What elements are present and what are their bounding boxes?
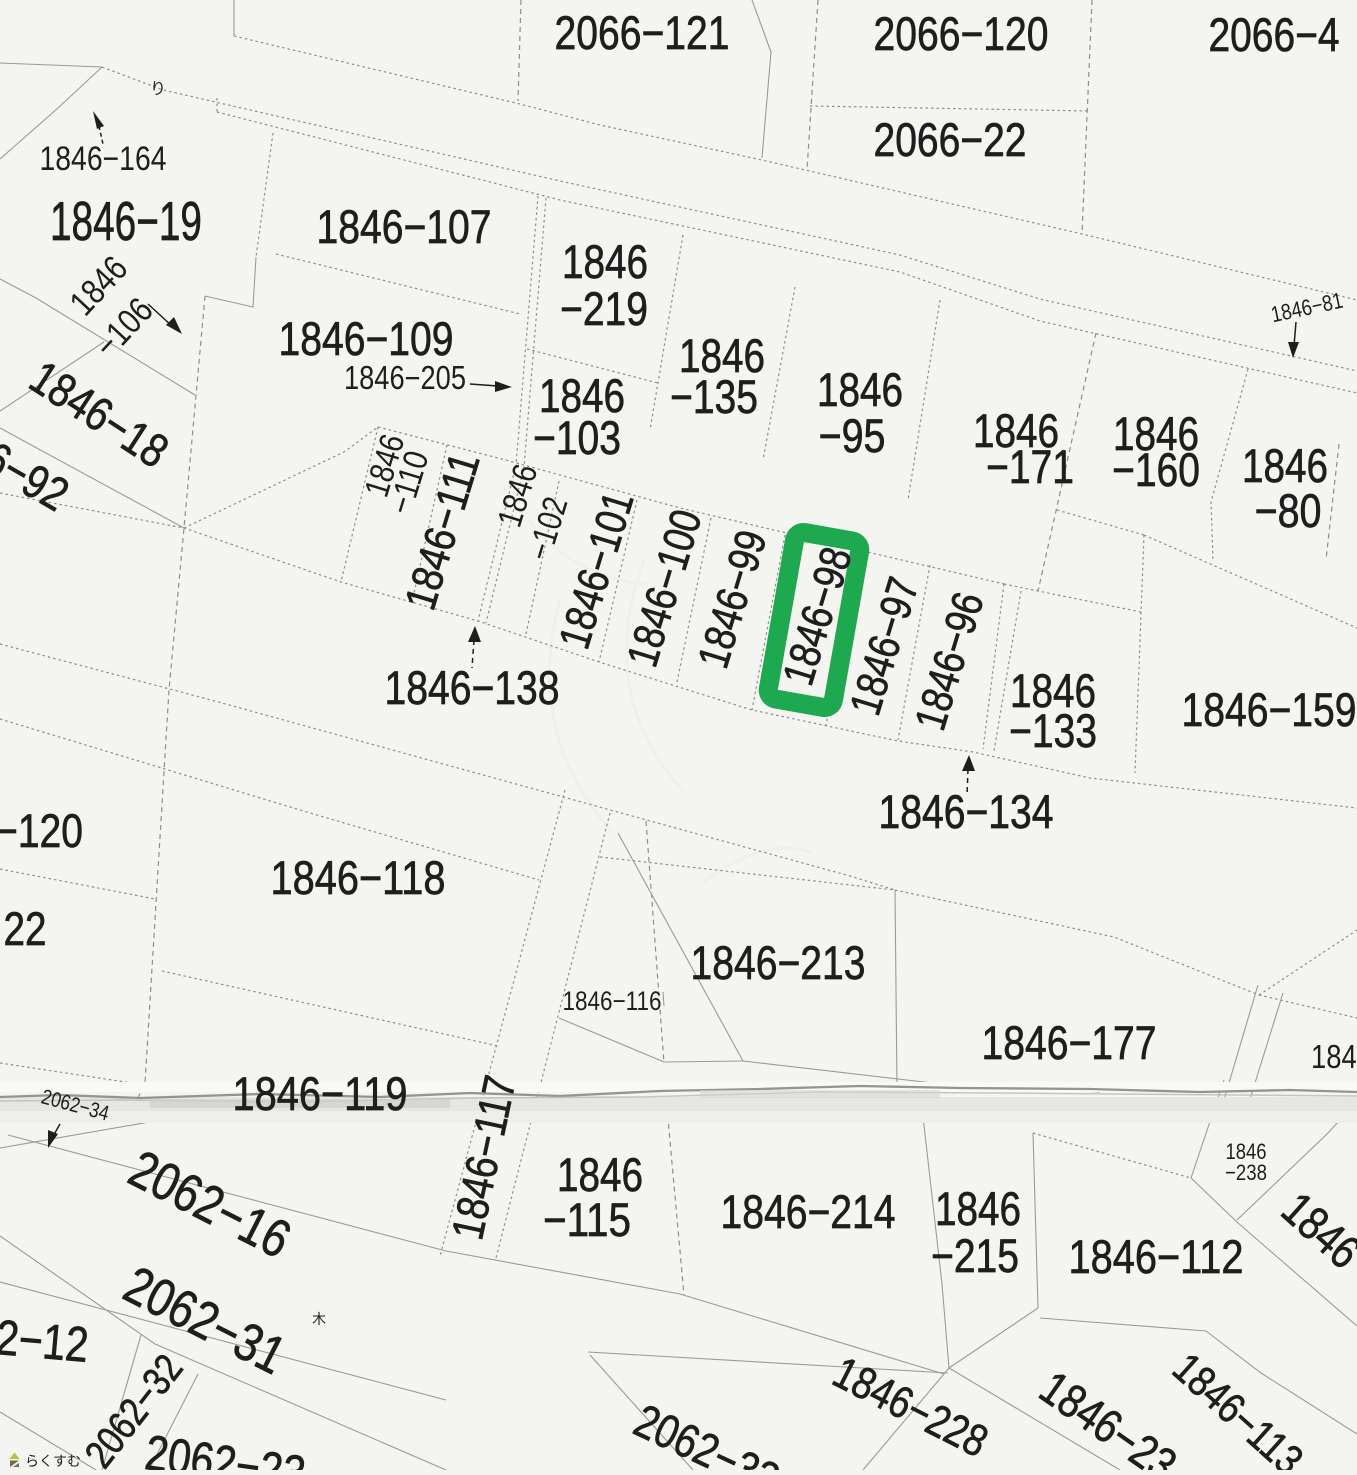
svg-text:−103: −103 xyxy=(533,412,621,465)
svg-text:1846−116: 1846−116 xyxy=(563,986,662,1016)
svg-text:1846: 1846 xyxy=(562,236,648,289)
svg-text:1846−118: 1846−118 xyxy=(271,852,446,905)
svg-text:22: 22 xyxy=(4,903,47,956)
svg-text:らくすむ: らくすむ xyxy=(25,1453,81,1469)
svg-text:1846−164: 1846−164 xyxy=(40,140,167,178)
svg-text:−238: −238 xyxy=(1225,1160,1267,1185)
svg-text:1846−213: 1846−213 xyxy=(691,937,866,990)
svg-text:−115: −115 xyxy=(543,1194,631,1247)
svg-text:2066−121: 2066−121 xyxy=(555,7,730,60)
svg-text:1846−119: 1846−119 xyxy=(233,1068,408,1121)
svg-text:−133: −133 xyxy=(1009,705,1097,758)
svg-text:−120: −120 xyxy=(0,805,83,858)
svg-text:2066−22: 2066−22 xyxy=(874,114,1027,167)
svg-text:2066−4: 2066−4 xyxy=(1209,9,1340,62)
svg-text:1846−205: 1846−205 xyxy=(344,359,466,396)
svg-text:1846−214: 1846−214 xyxy=(721,1186,896,1239)
svg-text:−171: −171 xyxy=(986,441,1074,494)
svg-text:−95: −95 xyxy=(819,410,886,463)
svg-text:り: り xyxy=(150,81,166,98)
svg-text:−219: −219 xyxy=(560,283,648,336)
svg-text:−160: −160 xyxy=(1112,444,1200,497)
svg-text:2066−120: 2066−120 xyxy=(874,8,1049,61)
svg-text:1846−159: 1846−159 xyxy=(1182,684,1357,737)
svg-text:1846−112: 1846−112 xyxy=(1069,1231,1244,1284)
svg-text:1846−177: 1846−177 xyxy=(982,1017,1157,1070)
svg-text:−80: −80 xyxy=(1255,485,1322,538)
svg-text:1846−134: 1846−134 xyxy=(879,786,1054,839)
svg-text:−135: −135 xyxy=(670,371,758,424)
svg-text:木: 木 xyxy=(312,1311,326,1327)
svg-text:1846−19: 1846−19 xyxy=(50,190,202,252)
svg-text:−215: −215 xyxy=(931,1230,1019,1283)
svg-text:1846−: 1846− xyxy=(1311,1038,1357,1075)
svg-text:1846−107: 1846−107 xyxy=(317,201,492,254)
svg-text:1846−138: 1846−138 xyxy=(385,662,560,715)
svg-text:1846: 1846 xyxy=(935,1183,1021,1236)
